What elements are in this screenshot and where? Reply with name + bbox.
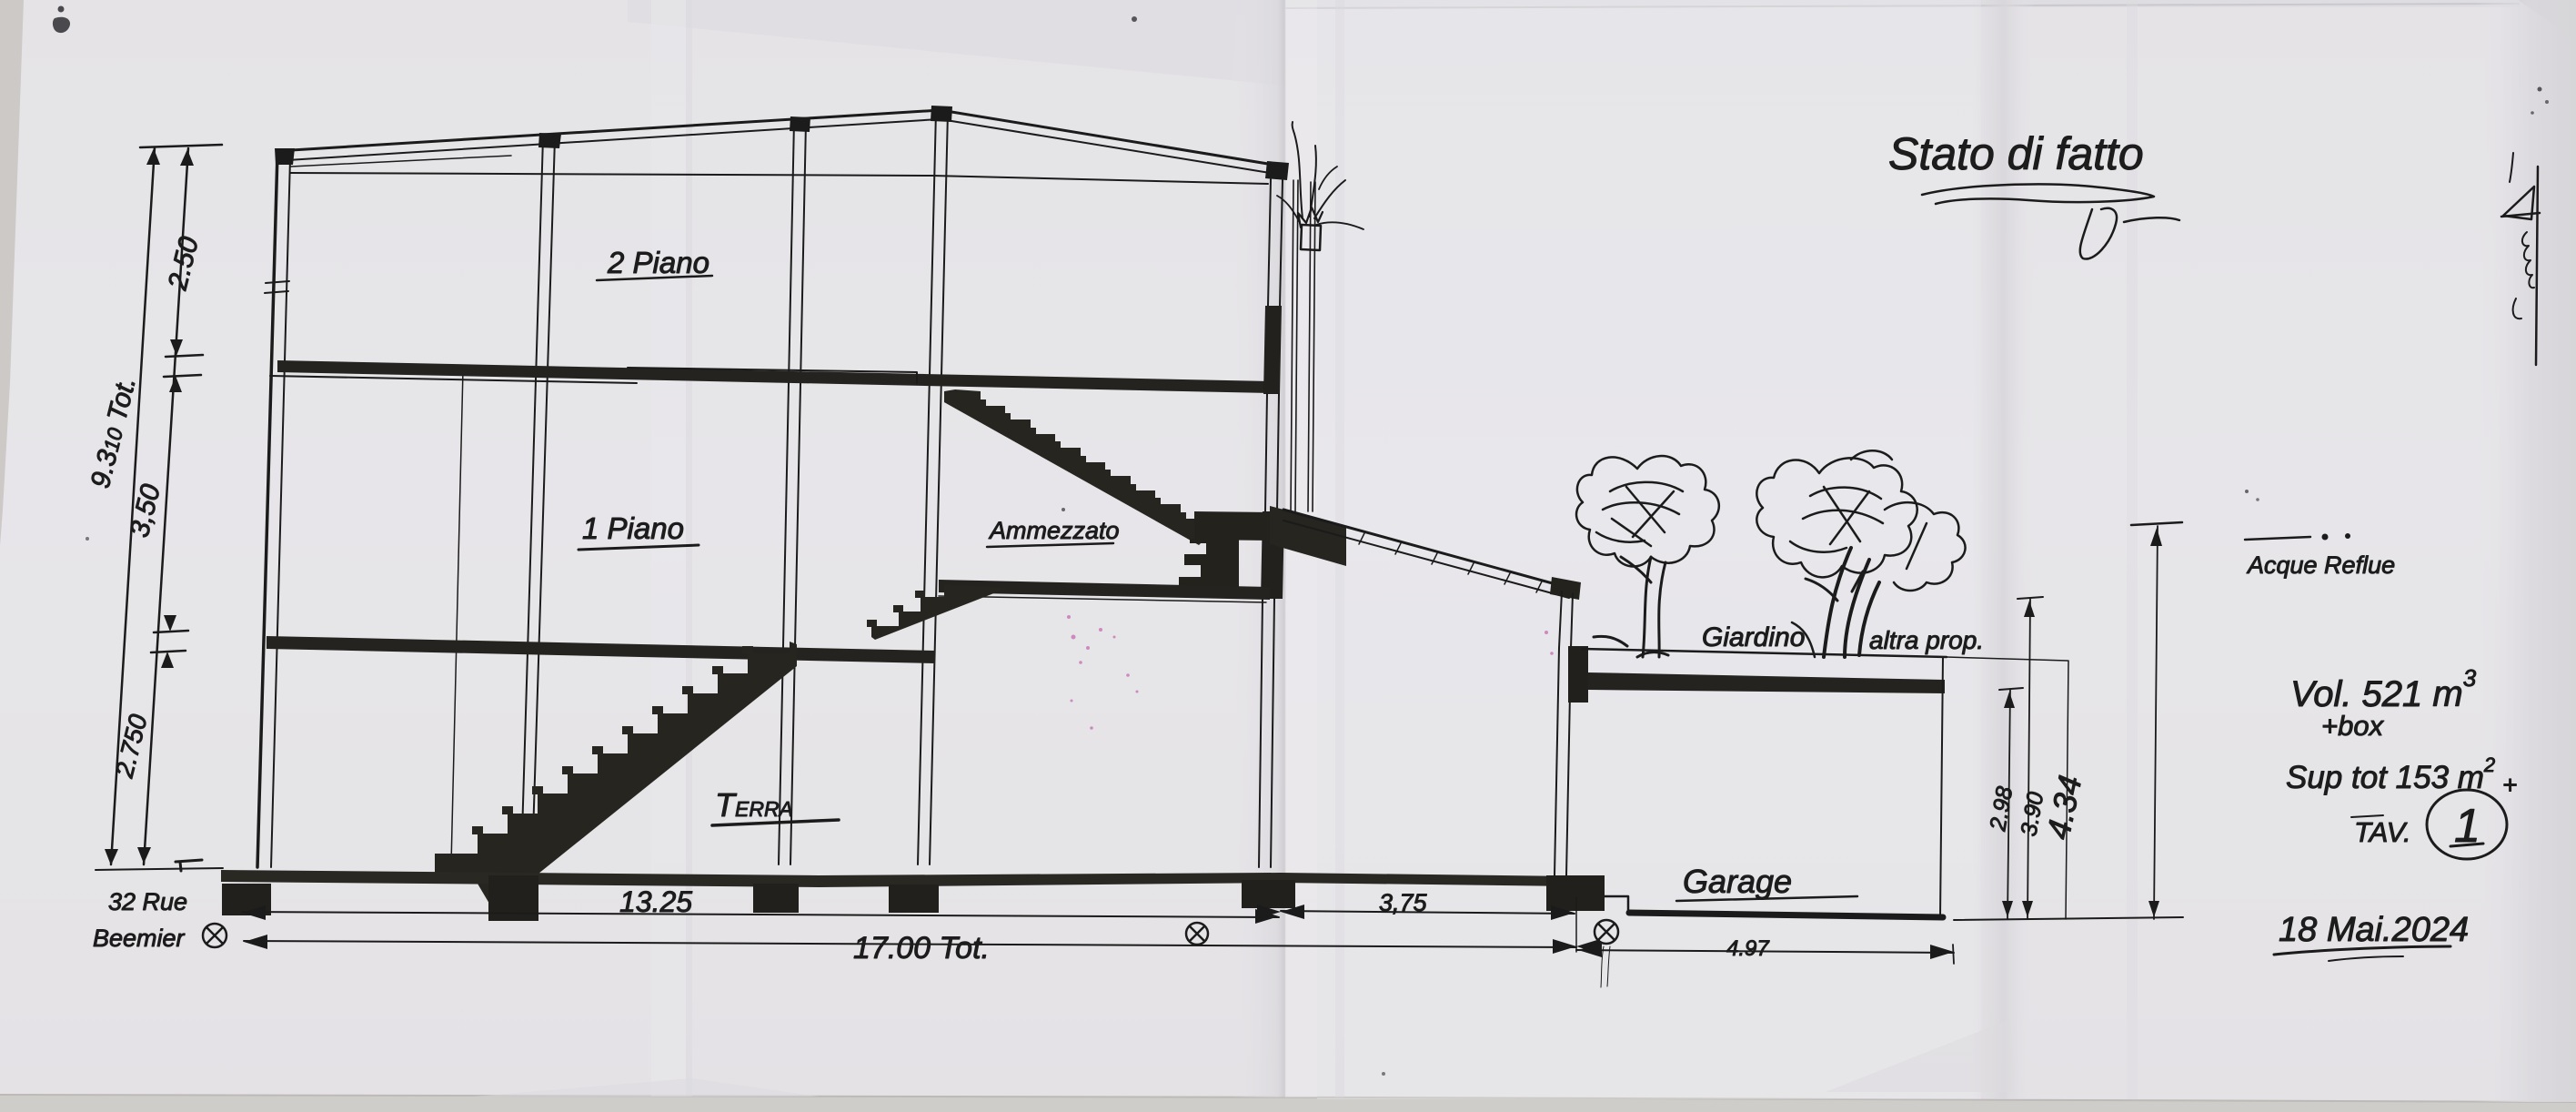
svg-text:1 Piano: 1 Piano bbox=[582, 511, 684, 545]
svg-text:4.97: 4.97 bbox=[1726, 936, 1770, 961]
svg-text:Acque Reflue: Acque Reflue bbox=[2246, 551, 2395, 579]
svg-text:32 Rue: 32 Rue bbox=[108, 888, 187, 915]
svg-text:18 Mai.2024: 18 Mai.2024 bbox=[2279, 911, 2469, 949]
svg-text:17.00 Tot.: 17.00 Tot. bbox=[853, 931, 990, 965]
svg-text:Giardino: Giardino bbox=[1702, 622, 1805, 652]
svg-text:2 Piano: 2 Piano bbox=[607, 246, 709, 279]
svg-text:13.25: 13.25 bbox=[619, 885, 692, 918]
svg-text:3,75: 3,75 bbox=[1379, 889, 1428, 916]
svg-text:+box: +box bbox=[2321, 710, 2385, 742]
svg-text:Beemier: Beemier bbox=[93, 925, 186, 952]
svg-text:Stato di fatto: Stato di fatto bbox=[1888, 128, 2144, 179]
svg-text:Ammezzato: Ammezzato bbox=[988, 517, 1120, 544]
svg-text:altra prop.: altra prop. bbox=[1869, 626, 1984, 654]
svg-text:TAV.: TAV. bbox=[2354, 816, 2411, 848]
svg-text:Garage: Garage bbox=[1683, 863, 1792, 900]
